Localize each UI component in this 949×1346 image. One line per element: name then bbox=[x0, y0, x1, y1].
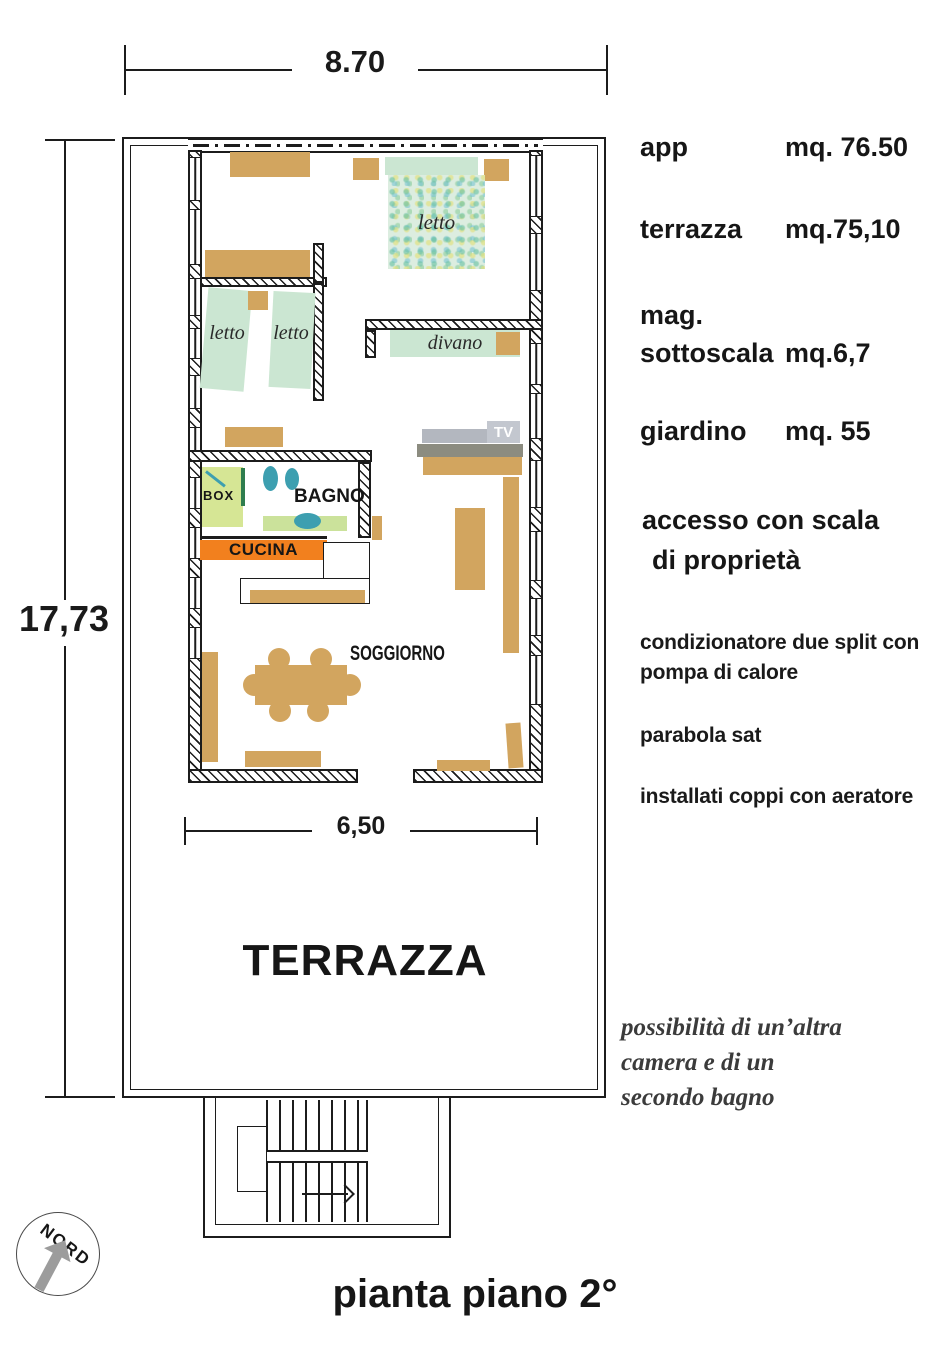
side-table bbox=[496, 332, 520, 355]
apartment-bottom-wall-left bbox=[188, 769, 358, 783]
window bbox=[530, 655, 542, 705]
dresser bbox=[225, 427, 283, 447]
dining-table bbox=[255, 665, 347, 705]
sideboard bbox=[437, 760, 490, 771]
measurement-row: terrazzamq.75,10 bbox=[640, 214, 901, 245]
cabinet bbox=[455, 508, 485, 590]
floor-plan-page: 8.70 17,73 6,50 letto bbox=[0, 0, 949, 1346]
double-bed: letto bbox=[388, 175, 485, 269]
measurement-value: mq. 76.50 bbox=[785, 132, 908, 162]
sink bbox=[263, 466, 278, 491]
window bbox=[530, 531, 542, 581]
kitchen-shelf bbox=[250, 590, 365, 603]
dim-left-tick-top bbox=[45, 139, 115, 141]
measurement-row: appmq. 76.50 bbox=[640, 132, 908, 163]
measurement-value: mq. 55 bbox=[785, 416, 871, 446]
note-aircon-line1: condizionatore due split con bbox=[640, 631, 919, 655]
stair-landing-bar bbox=[266, 1150, 368, 1163]
measurement-label: sottoscala bbox=[640, 338, 785, 369]
window bbox=[189, 577, 201, 609]
measurement-value: mq.6,7 bbox=[785, 338, 871, 368]
bathroom-label: BAGNO bbox=[294, 486, 374, 508]
wall-bathroom-top bbox=[188, 450, 372, 462]
wall-living-divider bbox=[365, 319, 543, 330]
measurement-row: sottoscalamq.6,7 bbox=[640, 338, 871, 369]
sideboard bbox=[423, 457, 522, 475]
remark-line3: secondo bagno bbox=[621, 1084, 774, 1112]
window bbox=[530, 233, 542, 291]
window bbox=[530, 393, 542, 439]
sideboard bbox=[245, 751, 321, 767]
nightstand bbox=[484, 159, 509, 181]
measurement-value: mq.75,10 bbox=[785, 214, 901, 244]
dim-left-label: 17,73 bbox=[6, 600, 122, 646]
shower-box-label: BOX bbox=[203, 488, 243, 503]
wall-bedroom-divider bbox=[200, 277, 327, 287]
measurement-label: mag. bbox=[640, 300, 785, 331]
window bbox=[189, 157, 201, 201]
remark-line1: possibilità di un’altra bbox=[621, 1014, 842, 1042]
window bbox=[530, 343, 542, 385]
wardrobe bbox=[230, 152, 310, 177]
sofa-label: divano bbox=[428, 332, 482, 355]
stair-well bbox=[237, 1126, 267, 1192]
shelf-strip bbox=[202, 652, 218, 762]
note-roof: installati coppi con aeratore bbox=[640, 785, 913, 809]
window bbox=[530, 155, 542, 217]
page-title: pianta piano 2° bbox=[280, 1272, 670, 1317]
tv-label: TV bbox=[494, 424, 513, 441]
window bbox=[189, 627, 201, 659]
nightstand bbox=[353, 158, 379, 180]
dim-top-label: 8.70 bbox=[292, 46, 418, 86]
window bbox=[530, 598, 542, 636]
window bbox=[189, 209, 201, 265]
window bbox=[530, 460, 542, 508]
window bbox=[189, 375, 201, 409]
bedroom-twin-a-label: letto bbox=[198, 322, 256, 345]
wall-jog bbox=[365, 330, 376, 358]
bedroom-twin-b-label: letto bbox=[262, 322, 320, 345]
nightstand bbox=[248, 291, 268, 310]
measurement-row: mag. bbox=[640, 300, 785, 331]
remark-line2: camera e di un bbox=[621, 1049, 774, 1077]
shelf-strip bbox=[503, 477, 519, 653]
cabinet bbox=[505, 723, 523, 769]
kitchen-counter: CUCINA bbox=[200, 540, 327, 560]
dresser bbox=[205, 250, 310, 277]
bedroom-main-label: letto bbox=[418, 210, 455, 235]
living-room-label: SOGGIORNO bbox=[350, 642, 444, 666]
toilet bbox=[294, 513, 321, 529]
measurement-label: giardino bbox=[640, 416, 785, 447]
terrace-label: TERRAZZA bbox=[230, 936, 500, 986]
tv-set: TV bbox=[487, 421, 520, 443]
apartment-bottom-wall-right bbox=[413, 769, 543, 783]
apartment-top-wall bbox=[188, 138, 543, 153]
dim-left-tick-bottom bbox=[45, 1096, 115, 1098]
bed-headboard bbox=[385, 157, 478, 175]
cabinet bbox=[372, 516, 382, 540]
note-satellite: parabola sat bbox=[640, 724, 761, 748]
tv-cabinet bbox=[417, 444, 523, 457]
note-access-line2: di proprietà bbox=[652, 545, 801, 576]
stair-run-upper bbox=[266, 1100, 368, 1152]
measurement-label: app bbox=[640, 132, 785, 163]
note-aircon-line2: pompa di calore bbox=[640, 661, 798, 685]
wall-kitchen-line bbox=[200, 536, 327, 539]
note-access-line1: accesso con scala bbox=[642, 505, 879, 536]
window bbox=[189, 477, 201, 509]
wall-jog bbox=[313, 243, 324, 283]
kitchen-label: CUCINA bbox=[229, 540, 298, 560]
measurement-label: terrazza bbox=[640, 214, 785, 245]
measurement-row: giardinomq. 55 bbox=[640, 416, 871, 447]
